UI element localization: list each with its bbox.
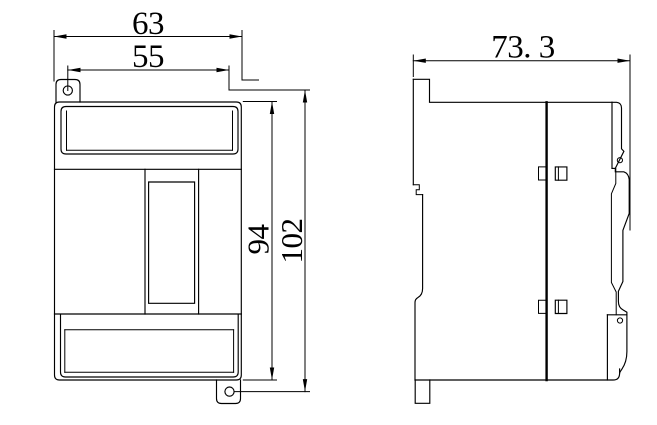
arrowhead-right-icon — [618, 59, 631, 63]
din-clip-upper — [612, 102, 624, 168]
side-view — [413, 79, 629, 403]
arrowhead-up-icon — [303, 90, 307, 103]
arrowhead-left-icon — [54, 34, 67, 38]
arrowhead-down-icon — [270, 368, 274, 381]
arrowhead-up-icon — [270, 102, 274, 115]
side-rear-inset-edge — [415, 195, 423, 380]
front-body-outline — [55, 102, 242, 380]
joint-clip-lower — [539, 300, 567, 313]
bottom-terminal-cover — [61, 315, 239, 378]
din-clip-lower — [607, 315, 627, 380]
side-bottom-tab — [415, 380, 430, 403]
dimension-drawing: 63 55 94 102 73. 3 — [0, 0, 657, 425]
arrowhead-down-icon — [303, 379, 307, 392]
dim-label-55: 55 — [132, 39, 164, 75]
center-window — [145, 169, 199, 314]
dim-front-width-upper: 55 — [68, 39, 229, 90]
dim-front-height-body: 94 — [241, 102, 277, 381]
arrowhead-left-icon — [413, 59, 426, 63]
front-view — [55, 66, 242, 404]
bottom-mounting-hole — [225, 387, 234, 396]
side-bottom-edge — [415, 369, 620, 380]
dim-label-102: 102 — [274, 219, 309, 264]
side-top-flange — [413, 79, 612, 102]
arrowhead-right-icon — [230, 34, 243, 38]
arrowhead-right-icon — [217, 68, 230, 72]
din-latch-arm — [611, 168, 629, 314]
clip-hole-lower — [617, 318, 622, 323]
technical-drawing-page: 63 55 94 102 73. 3 — [0, 0, 657, 425]
dim-label-63: 63 — [132, 6, 164, 42]
dim-label-94: 94 — [241, 224, 276, 255]
dim-label-73-3: 73. 3 — [491, 30, 555, 66]
din-rail-hook — [413, 185, 422, 195]
dim-side-depth: 73. 3 — [413, 30, 630, 231]
extension-line — [242, 31, 259, 81]
top-terminal-cover — [61, 107, 238, 155]
arrowhead-left-icon — [68, 68, 81, 72]
joint-clip-upper — [539, 167, 567, 180]
